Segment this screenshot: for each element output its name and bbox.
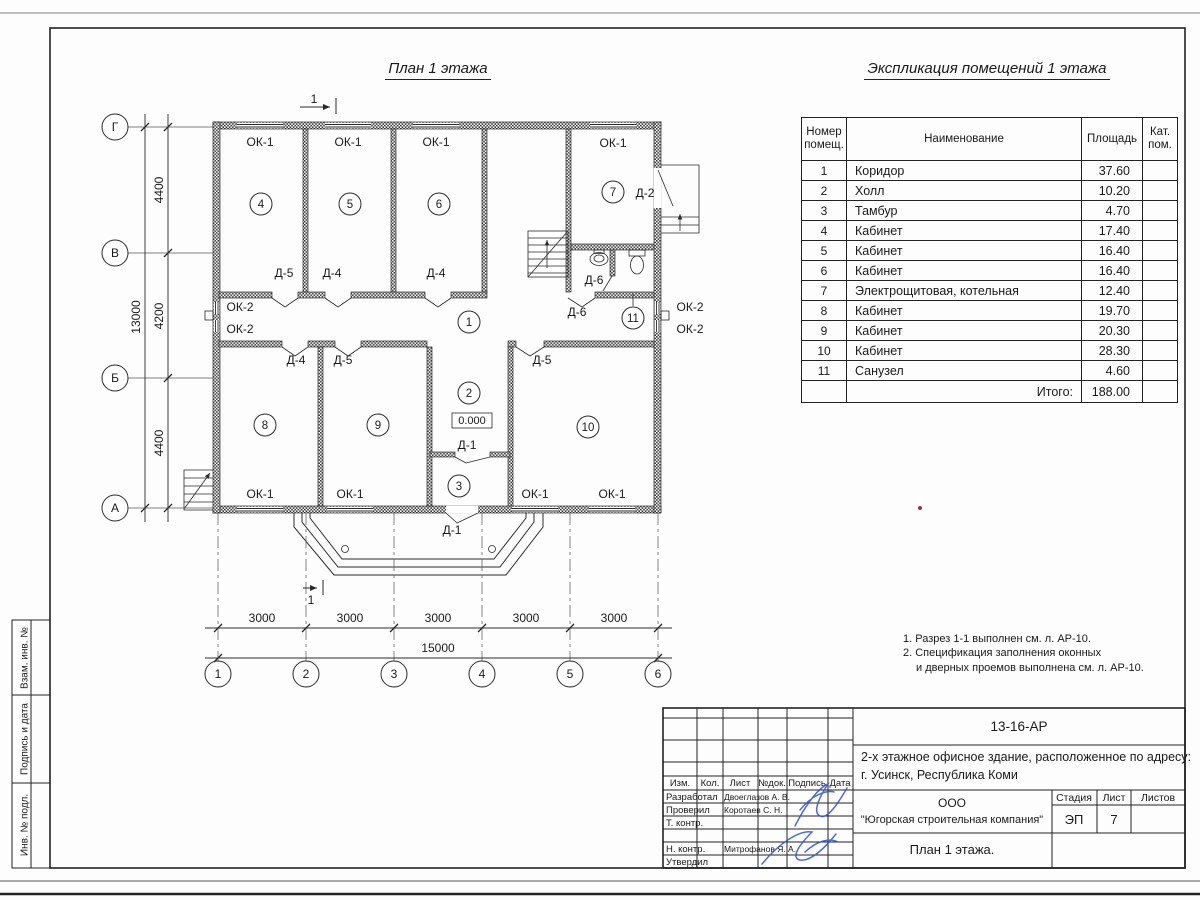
dim-bay-5: 3000 (601, 611, 628, 625)
cell-num: 6 (802, 261, 847, 281)
table-row: 5Кабинет16.40 (802, 241, 1178, 261)
cell-area: 16.40 (1082, 241, 1143, 261)
table-row: 8Кабинет19.70 (802, 301, 1178, 321)
dim-bay-1: 3000 (249, 611, 276, 625)
cell-name: Кабинет (847, 261, 1082, 281)
cell-area: 37.60 (1082, 161, 1143, 181)
cell-area: 17.40 (1082, 221, 1143, 241)
cell-num: 7 (802, 281, 847, 301)
company-name-line2: "Югорская строительная компания" (861, 814, 1044, 826)
role-t-kontr: Т. контр. (666, 818, 703, 829)
door-label-d6: Д-6 (568, 305, 587, 319)
window-label-ok2: ОК-2 (677, 300, 704, 314)
cell-cat (1143, 261, 1178, 281)
door-label-d1: Д-1 (458, 438, 477, 452)
table-row: 7Электрощитовая, котельная12.40 (802, 281, 1178, 301)
axis-row-a: А (111, 501, 119, 515)
sanitary-fixtures (590, 250, 645, 274)
window-label-ok2: ОК-2 (677, 322, 704, 336)
door-label-d5: Д-5 (334, 353, 353, 367)
window-label-ok1: ОК-1 (423, 135, 450, 149)
schedule-header-row: Номер помещ. Наименование Площадь Кат. п… (802, 118, 1178, 161)
cell-area: 4.60 (1082, 361, 1143, 381)
grid-axes: Г В Б А 1 2 3 4 5 6 (102, 114, 671, 687)
cell-area: 20.30 (1082, 321, 1143, 341)
cell-cat (1143, 201, 1178, 221)
section-mark-top: 1 (311, 92, 318, 106)
table-row: 4Кабинет17.40 (802, 221, 1178, 241)
dim-h-top: 4400 (152, 176, 166, 203)
cell-area: 16.40 (1082, 261, 1143, 281)
axis-col-1: 1 (215, 667, 222, 681)
door-label-d4: Д-4 (287, 353, 306, 367)
cell-name: Кабинет (847, 301, 1082, 321)
cell-num: 3 (802, 201, 847, 221)
col-kol: Кол. (701, 778, 720, 789)
total-label: Итого: (847, 381, 1082, 403)
room-10: 10 (582, 422, 595, 434)
room-bubbles: 4 5 6 7 1 2 8 9 10 3 11 0.000 (250, 181, 644, 497)
cell-cat (1143, 241, 1178, 261)
door-label-d5: Д-5 (533, 353, 552, 367)
col-podpis: Подпись (788, 778, 826, 789)
col-izm: Изм. (670, 778, 690, 789)
room-5: 5 (347, 199, 353, 211)
header-area: Площадь (1082, 118, 1143, 161)
cell-area: 19.70 (1082, 301, 1143, 321)
cell-num: 10 (802, 341, 847, 361)
room-7: 7 (610, 187, 616, 199)
dimensions: 3000 3000 3000 3000 3000 15000 4400 4200… (129, 114, 672, 662)
cell-num: 2 (802, 181, 847, 201)
sheets-label: Листов (1141, 792, 1176, 804)
sidebar-box2-label: Подпись и дата (20, 703, 31, 775)
project-description-line2: г. Усинск, Республика Коми (861, 768, 1018, 782)
col-ndok: №док. (758, 778, 786, 789)
cell-num: 11 (802, 361, 847, 381)
cell-name: Санузел (847, 361, 1082, 381)
room-1: 1 (466, 317, 472, 329)
drawing-title: План 1 этажа. (910, 842, 995, 857)
cell-name: Кабинет (847, 241, 1082, 261)
col-data: Дата (829, 778, 851, 789)
table-row: 9Кабинет20.30 (802, 321, 1178, 341)
cell-num: 4 (802, 221, 847, 241)
porch-column (489, 546, 496, 553)
cell-name: Холл (847, 181, 1082, 201)
entrance-porch (294, 513, 543, 575)
role-utverdil: Утвердил (666, 857, 708, 868)
cell-area: 12.40 (1082, 281, 1143, 301)
stage-label: Стадия (1056, 792, 1092, 804)
dim-bay-2: 3000 (337, 611, 364, 625)
sidebar-box1-label: Взам. инв. № (20, 627, 31, 689)
cell-name: Кабинет (847, 221, 1082, 241)
cell-area: 4.70 (1082, 201, 1143, 221)
room-9: 9 (375, 420, 381, 432)
room-6: 6 (436, 199, 442, 211)
axis-row-v: В (111, 246, 119, 260)
axis-col-3: 3 (391, 667, 398, 681)
stage-value: ЭП (1065, 812, 1084, 827)
window-label-ok1: ОК-1 (337, 487, 364, 501)
schedule-total-row: Итого: 188.00 (802, 381, 1178, 403)
plan-walls (205, 122, 669, 513)
sidebar-box3-label: Инв. № подл. (20, 794, 31, 856)
dim-h-bottom: 4400 (152, 429, 166, 456)
plan-title: План 1 этажа (352, 60, 524, 80)
name-n-kontr: Митрофанов Я. А. (724, 844, 796, 854)
porch-column (342, 546, 349, 553)
axis-row-b: Б (111, 371, 119, 385)
window-label-ok1: ОК-1 (522, 487, 549, 501)
cell-name: Электрощитовая, котельная (847, 281, 1082, 301)
room-11: 11 (627, 313, 639, 325)
schedule-title: Экспликация помещений 1 этажа (849, 60, 1125, 80)
table-row: 11Санузел4.60 (802, 361, 1178, 381)
cell-name: Кабинет (847, 321, 1082, 341)
table-row: 3Тамбур4.70 (802, 201, 1178, 221)
cell-name: Тамбур (847, 201, 1082, 221)
cell-cat (1143, 181, 1178, 201)
cell-name: Кабинет (847, 341, 1082, 361)
stairs (184, 165, 699, 510)
notes-block: 1. Разрез 1-1 выполнен см. л. АР-10. 2. … (903, 632, 1200, 675)
cell-name: Коридор (847, 161, 1082, 181)
project-description-line1: 2-х этажное офисное здание, расположенно… (861, 750, 1191, 764)
cell-area: 28.30 (1082, 341, 1143, 361)
door-label-d1: Д-1 (443, 523, 462, 537)
name-proveril: Коротаев С. Н. (724, 805, 782, 815)
axis-col-2: 2 (303, 667, 310, 681)
cell-cat (1143, 161, 1178, 181)
door-label-d4: Д-4 (427, 266, 446, 280)
window-label-ok1: ОК-1 (247, 487, 274, 501)
header-room-number: Номер помещ. (802, 118, 847, 161)
cell-num: 9 (802, 321, 847, 341)
dim-bay-3: 3000 (425, 611, 452, 625)
door-label-d5: Д-5 (275, 266, 294, 280)
col-list: Лист (730, 778, 751, 789)
company-name-line1: ООО (938, 796, 966, 810)
cell-area: 10.20 (1082, 181, 1143, 201)
cell-num: 1 (802, 161, 847, 181)
axis-col-4: 4 (479, 667, 486, 681)
axis-col-5: 5 (567, 667, 574, 681)
drawing-sheet: Взам. инв. № Подпись и дата Инв. № подл. (0, 0, 1200, 900)
role-proveril: Проверил (666, 805, 710, 816)
cell-num: 8 (802, 301, 847, 321)
cell-empty (1143, 381, 1178, 403)
schedule-title-text: Экспликация помещений 1 этажа (864, 60, 1109, 80)
room-3: 3 (456, 481, 462, 493)
cell-cat (1143, 361, 1178, 381)
axis-col-6: 6 (655, 667, 662, 681)
dim-total-height: 13000 (129, 300, 143, 334)
dim-total-width: 15000 (421, 641, 455, 655)
name-razrabotal: Двоеглазов А. В. (724, 792, 790, 802)
section-mark-bottom: 1 (308, 593, 315, 607)
table-row: 2Холл10.20 (802, 181, 1178, 201)
note-line: 1. Разрез 1-1 выполнен см. л. АР-10. (903, 632, 1200, 646)
room-schedule-table: Номер помещ. Наименование Площадь Кат. п… (801, 117, 1178, 403)
axis-row-g: Г (112, 120, 119, 134)
header-name: Наименование (847, 118, 1082, 161)
sidebar-stamp: Взам. инв. № Подпись и дата Инв. № подл. (12, 620, 50, 868)
elevation-mark: 0.000 (458, 415, 486, 427)
doc-number: 13-16-АР (990, 719, 1047, 734)
role-n-kontr: Н. контр. (666, 844, 705, 855)
note-line: и дверных проемов выполнена см. л. АР-10… (903, 661, 1200, 675)
cell-cat (1143, 281, 1178, 301)
cell-cat (1143, 321, 1178, 341)
table-row: 1Коридор37.60 (802, 161, 1178, 181)
room-2: 2 (466, 388, 472, 400)
total-area: 188.00 (1082, 381, 1143, 403)
table-row: 6Кабинет16.40 (802, 261, 1178, 281)
title-block: 13-16-АР 2-х этажное офисное здание, рас… (663, 708, 1191, 868)
door-label-d6: Д-6 (585, 273, 604, 287)
sheet-number: 7 (1110, 812, 1117, 827)
dim-h-mid: 4200 (152, 302, 166, 329)
dim-bay-4: 3000 (513, 611, 540, 625)
room-8: 8 (262, 420, 268, 432)
cell-cat (1143, 341, 1178, 361)
header-category: Кат. пом. (1143, 118, 1178, 161)
window-label-ok1: ОК-1 (247, 135, 274, 149)
room-4: 4 (258, 199, 265, 211)
scan-speck (918, 506, 922, 510)
note-line: 2. Спецификация заполнения оконных (903, 646, 1200, 660)
cell-cat (1143, 301, 1178, 321)
cell-cat (1143, 221, 1178, 241)
window-label-ok1: ОК-1 (599, 487, 626, 501)
door-label-d4: Д-4 (323, 266, 342, 280)
door-label-d2: Д-2 (636, 186, 655, 200)
window-label-ok2: ОК-2 (227, 300, 254, 314)
table-row: 10Кабинет28.30 (802, 341, 1178, 361)
window-label-ok2: ОК-2 (227, 322, 254, 336)
role-razrabotal: Разработал (666, 792, 718, 803)
cell-num: 5 (802, 241, 847, 261)
plan-title-text: План 1 этажа (385, 60, 490, 80)
sheet-label: Лист (1103, 792, 1126, 804)
window-label-ok1: ОК-1 (335, 135, 362, 149)
cell-empty (802, 381, 847, 403)
window-label-ok1: ОК-1 (600, 136, 627, 150)
